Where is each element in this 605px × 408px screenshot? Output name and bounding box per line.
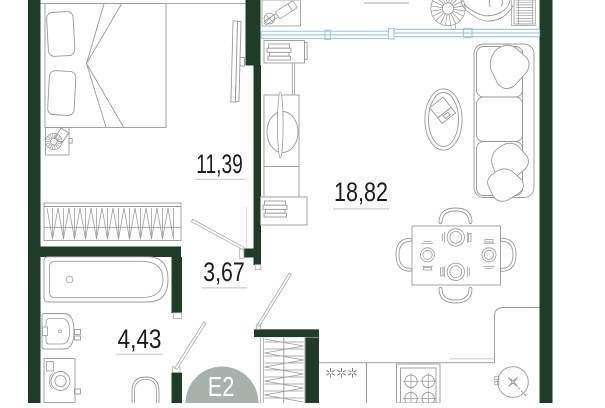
svg-text:3,67: 3,67 <box>203 257 245 287</box>
svg-text:E2: E2 <box>208 371 235 402</box>
svg-text:4,43: 4,43 <box>118 324 162 354</box>
svg-text:18,82: 18,82 <box>334 177 388 207</box>
svg-text:11,39: 11,39 <box>196 149 243 179</box>
